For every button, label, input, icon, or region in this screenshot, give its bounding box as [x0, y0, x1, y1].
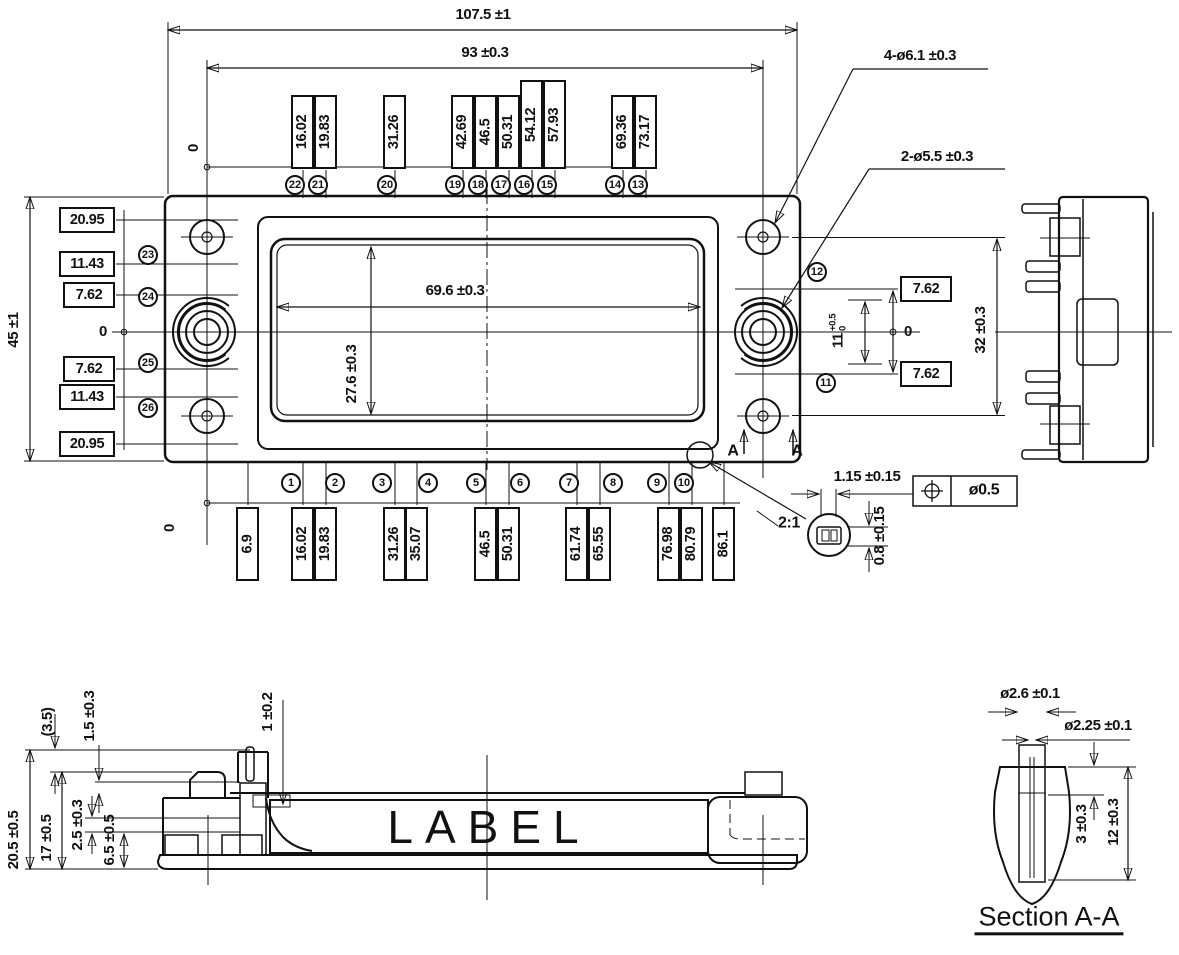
- right-offset-box: 7.62: [900, 361, 952, 387]
- profile-view-linework: [995, 197, 1172, 462]
- pin-number: 20: [377, 175, 397, 195]
- dim-hole-span: 32 ±0.3: [973, 306, 989, 353]
- dim-depth-full: 12 ±0.3: [1106, 798, 1122, 845]
- bottom-pin-offset-box: 86.1: [712, 507, 735, 581]
- pin-number: 24: [138, 287, 158, 307]
- dim-body-height-front: 17 ±0.5: [39, 814, 55, 861]
- bottom-pin-offset-box: 65.55: [588, 507, 611, 581]
- pin-number: 2: [325, 473, 345, 493]
- dim-base-height: 6.5 ±0.5: [102, 815, 118, 866]
- pin-number: 26: [138, 398, 158, 418]
- section-marker-left: A: [726, 444, 739, 461]
- left-offset-box: 7.62: [63, 282, 115, 308]
- pin-number: 10: [674, 473, 694, 493]
- left-offset-box: 11.43: [59, 384, 115, 410]
- dim-right-pin-span-value: 11: [830, 333, 846, 348]
- top-pin-offset-box: 19.83: [314, 95, 337, 169]
- origin-marker-right: 0: [903, 324, 913, 340]
- bottom-pin-offset-box: 46.5: [474, 507, 497, 581]
- bottom-pin-offset-box: 6.9: [236, 507, 259, 581]
- pin-number: 12: [807, 262, 827, 282]
- bottom-pin-offset-box: 31.26: [383, 507, 406, 581]
- bottom-pin-offset-box: 80.79: [680, 507, 703, 581]
- top-pad-strip: [290, 198, 714, 213]
- origin-marker-bottom: 0: [162, 524, 178, 532]
- detail-dim-height: 0.8 ±0.15: [872, 507, 888, 566]
- pin-number: 7: [559, 473, 579, 493]
- pin-number: 14: [605, 175, 625, 195]
- bottom-pin-offset-box: 50.31: [497, 507, 520, 581]
- section-marker-right: A: [790, 444, 803, 461]
- pin-number: 8: [603, 473, 623, 493]
- dim-bore-outer: ø2.6 ±0.1: [999, 686, 1061, 702]
- top-pin-offset-box: 73.17: [634, 95, 657, 169]
- top-pin-offset-box: 57.93: [543, 80, 566, 169]
- pin-number: 5: [466, 473, 486, 493]
- pin-number: 6: [510, 473, 530, 493]
- bottom-pin-offset-box: 19.83: [314, 507, 337, 581]
- detail-scale: 2:1: [777, 516, 801, 533]
- pin-number: 4: [418, 473, 438, 493]
- dim-overall-width: 107.5 ±1: [454, 7, 511, 23]
- pin-number: 18: [468, 175, 488, 195]
- top-pin-offset-box: 42.69: [451, 95, 474, 169]
- bottom-pin-offset-box: 35.07: [405, 507, 428, 581]
- section-title: Section A-A: [974, 902, 1123, 935]
- dim-step-height: 2.5 ±0.3: [70, 800, 86, 851]
- bottom-pin-offset-box: 76.98: [657, 507, 680, 581]
- left-offset-box: 11.43: [59, 251, 115, 277]
- dim-lid-step: 1.5 ±0.3: [82, 691, 98, 742]
- pin-number: 15: [537, 175, 557, 195]
- dim-overall-height: 20.5 ±0.5: [6, 811, 22, 870]
- dim-window-height: 27.6 ±0.3: [344, 345, 360, 404]
- dim-pin-span: 93 ±0.3: [460, 45, 509, 61]
- top-pin-offset-box: 31.26: [383, 95, 406, 169]
- pin-number: 1: [281, 473, 301, 493]
- dim-right-pin-span: 11+0.50: [829, 314, 848, 348]
- tolerance-frame-value: ø0.5: [968, 483, 1000, 500]
- dim-pin-seat: 1 ±0.2: [260, 692, 276, 731]
- pin-number: 25: [138, 353, 158, 373]
- drawing-canvas: 107.5 ±1 93 ±0.3 4-ø6.1 ±0.3 2-ø5.5 ±0.3…: [0, 0, 1179, 955]
- bottom-pin-offset-box: 61.74: [565, 507, 588, 581]
- dim-depth-step: 3 ±0.3: [1074, 804, 1090, 843]
- top-pin-offset-box: 16.02: [291, 95, 314, 169]
- pin-number: 23: [138, 245, 158, 265]
- pin-number: 16: [514, 175, 534, 195]
- callout-center-holes: 2-ø5.5 ±0.3: [900, 149, 974, 165]
- pin-number: 19: [445, 175, 465, 195]
- top-pin-offset-box: 46.5: [474, 95, 497, 169]
- top-pin-offset-box: 50.31: [497, 95, 520, 169]
- origin-marker-left: 0: [98, 324, 108, 340]
- callout-corner-holes: 4-ø6.1 ±0.3: [883, 48, 957, 64]
- top-pin-offset-box: 69.36: [611, 95, 634, 169]
- pin-number: 3: [372, 473, 392, 493]
- right-offset-box: 7.62: [900, 276, 952, 302]
- pin-number: 22: [285, 175, 305, 195]
- origin-marker-top: 0: [186, 144, 202, 152]
- dim-window-width: 69.6 ±0.3: [425, 283, 486, 299]
- top-pin-offset-box: 54.12: [520, 80, 543, 169]
- pin-number: 9: [647, 473, 667, 493]
- pin-number: 13: [628, 175, 648, 195]
- module-label-text: LABEL: [386, 803, 591, 851]
- pin-number: 21: [308, 175, 328, 195]
- dim-body-height: 45 ±1: [6, 312, 22, 347]
- pin-number: 11: [816, 373, 836, 393]
- dim-right-pin-span-tolerance: +0.50: [829, 314, 848, 331]
- pin-number: 17: [491, 175, 511, 195]
- detail-dim-width: 1.15 ±0.15: [833, 469, 902, 485]
- dim-pin-protrusion: (3.5): [40, 708, 56, 737]
- left-offset-box: 7.62: [63, 356, 115, 382]
- bottom-pin-offset-box: 16.02: [291, 507, 314, 581]
- left-offset-box: 20.95: [59, 207, 115, 233]
- left-offset-box: 20.95: [59, 431, 115, 457]
- dim-bore-inner: ø2.25 ±0.1: [1063, 718, 1133, 734]
